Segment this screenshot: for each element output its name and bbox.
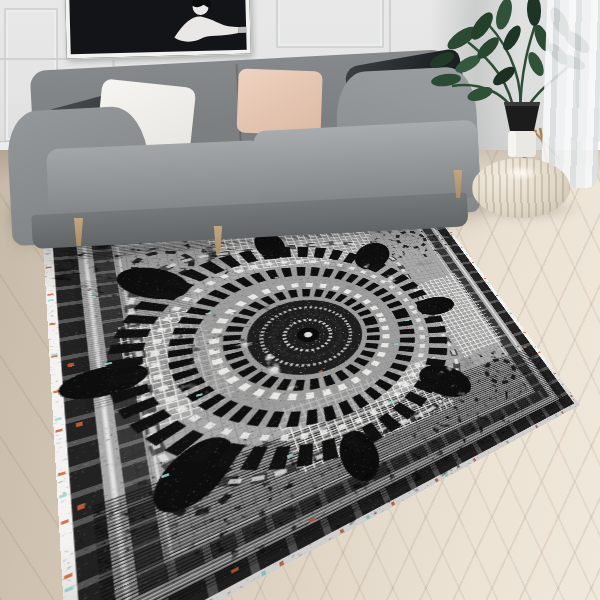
artwork-figure: [69, 0, 246, 54]
pillow-blush: [237, 69, 323, 136]
framed-artwork: [65, 0, 251, 58]
wall-molding-panel: [276, 0, 384, 48]
wall-molding-line: [0, 58, 70, 60]
knitted-pouf: [472, 158, 570, 218]
plant-pot: [504, 102, 540, 157]
curtain: [541, 0, 600, 188]
living-room-scene: Product photo: distressed black, white a…: [0, 0, 600, 600]
